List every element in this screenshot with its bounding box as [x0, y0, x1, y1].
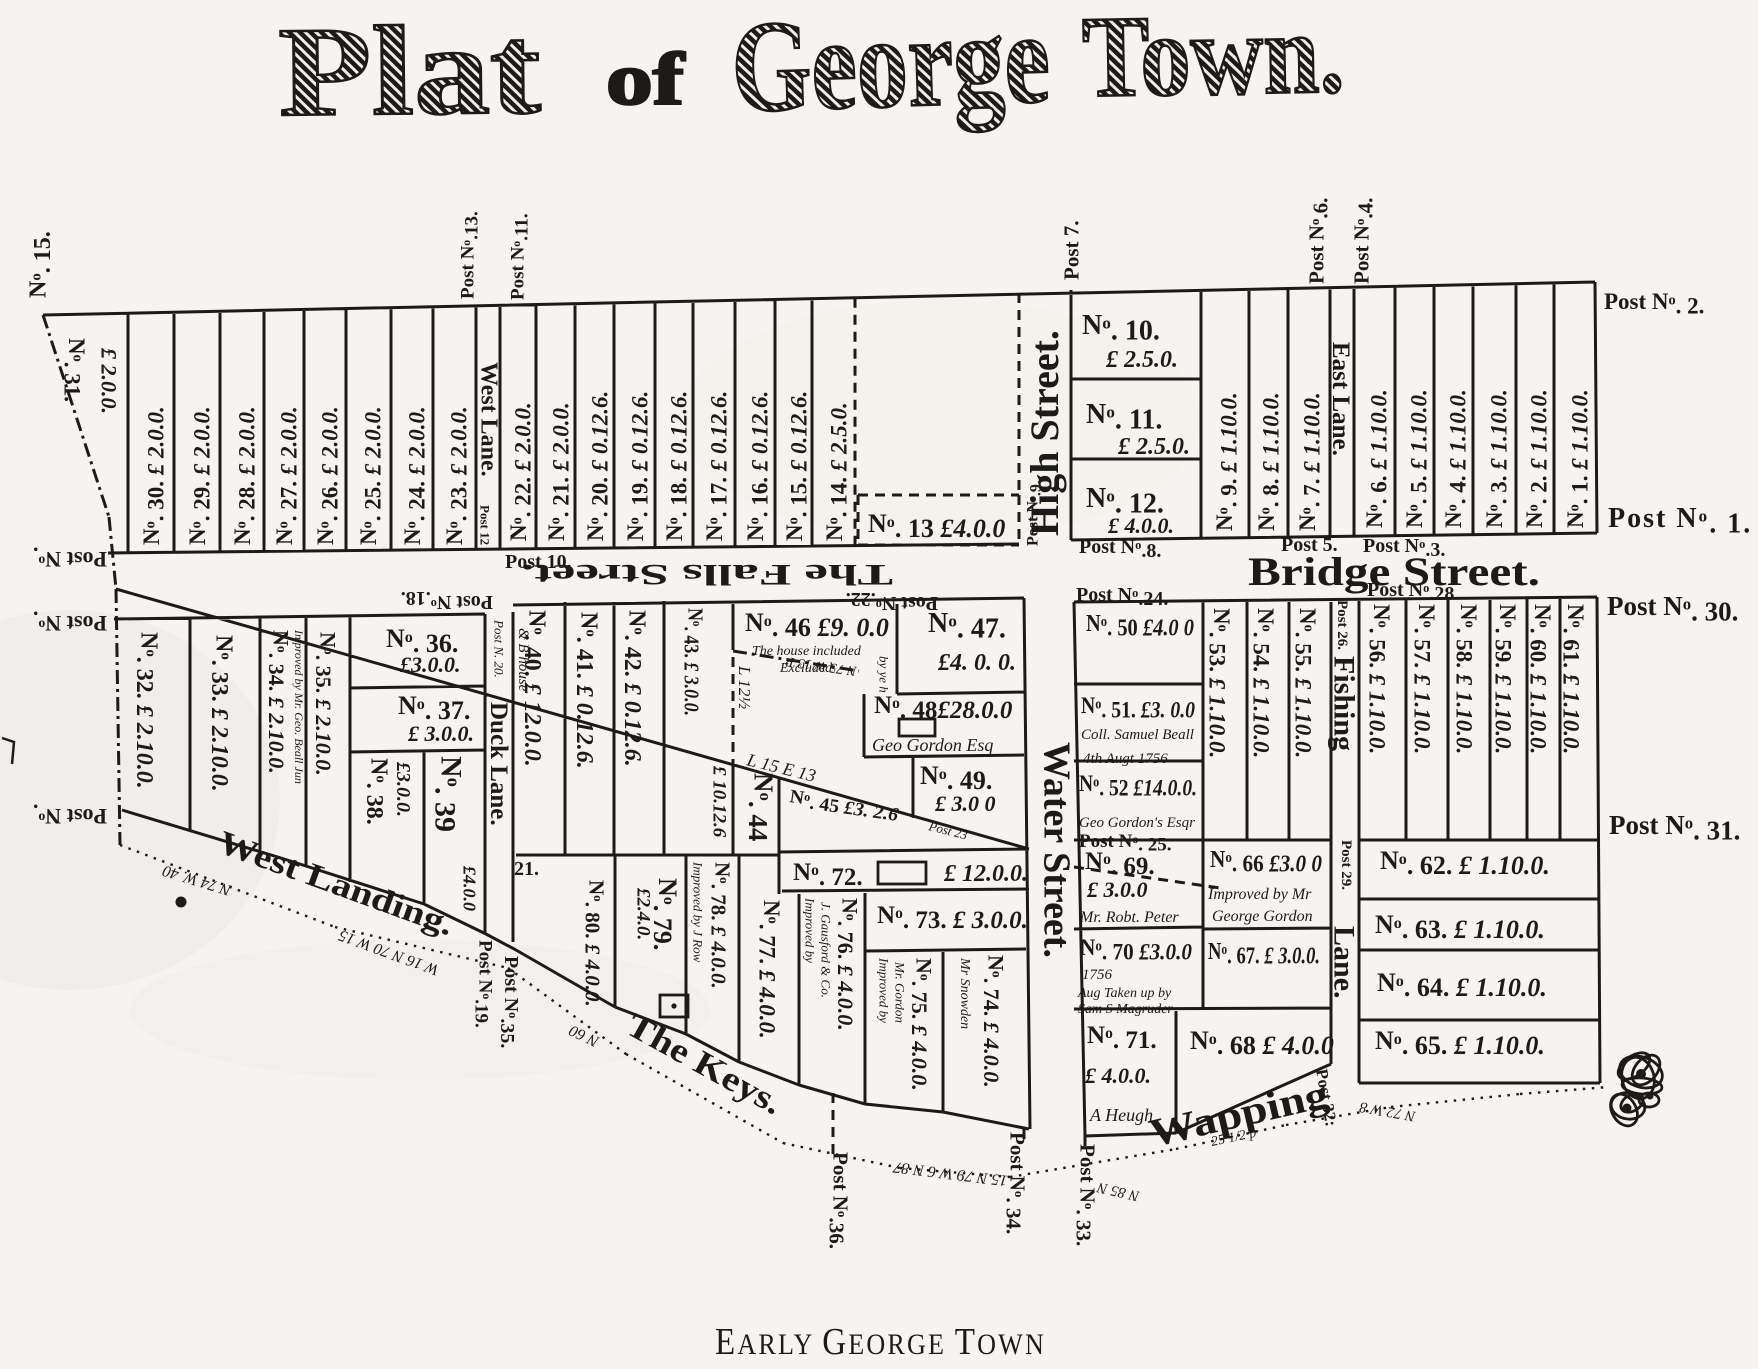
svg-text:by ye h: by ye h	[877, 656, 892, 693]
svg-text:Improved by Mr: Improved by Mr	[1207, 886, 1312, 903]
svg-text:£ 4.0.0.: £ 4.0.0.	[1107, 513, 1174, 538]
svg-text:Post No.6.: Post No.6.	[1304, 198, 1332, 284]
svg-text:£ 12.0.0.: £ 12.0.0.	[943, 861, 1028, 887]
svg-text:Post 12: Post 12	[477, 505, 492, 545]
svg-text:J. Gausford & Co.: J. Gausford & Co.	[819, 902, 834, 998]
svg-text:Post N. 20.: Post N. 20.	[491, 619, 506, 678]
svg-text:Post 7.: Post 7.	[1059, 221, 1083, 281]
svg-text:No. 37.: No. 37.	[398, 691, 470, 725]
svg-text:Plat: Plat	[278, 0, 542, 143]
svg-text:Post No.36.: Post No.36.	[825, 1152, 853, 1249]
svg-text:£3.0.0.: £3.0.0.	[399, 652, 461, 677]
svg-text:£3.0.0.: £3.0.0.	[392, 761, 414, 817]
svg-text:£4.0.0: £4.0.0	[460, 865, 480, 911]
svg-text:The Falls Street.: The Falls Street.	[521, 558, 893, 591]
svg-text:Post No.4.: Post No.4.	[1349, 198, 1377, 284]
svg-text:Post No.19.: Post No.19.	[471, 940, 496, 1028]
svg-text:£ 3.0 0: £ 3.0 0	[934, 791, 996, 816]
svg-text:Post No.13.: Post No.13.	[458, 211, 483, 299]
svg-text:A Heugh: A Heugh	[1089, 1105, 1153, 1125]
svg-text:of: of	[606, 39, 686, 121]
svg-text:Improved by J Row: Improved by J Row	[691, 861, 706, 963]
svg-text:£ 3.0.0: £ 3.0.0	[1086, 877, 1148, 902]
svg-text:Town.: Town.	[1081, 0, 1345, 122]
svg-text:1756: 1756	[1082, 967, 1113, 983]
svg-text:Lane.: Lane.	[1328, 926, 1361, 999]
svg-text:Post No. 33.: Post No. 33.	[1072, 1144, 1100, 1246]
svg-text:Mr. Robt. Peter: Mr. Robt. Peter	[1079, 909, 1179, 926]
svg-text:Post No. 34.: Post No. 34.	[1002, 1132, 1030, 1234]
svg-text:Mr Snowden: Mr Snowden	[957, 957, 972, 1029]
svg-text:Post 29.: Post 29.	[1338, 840, 1354, 890]
svg-text:East Lane.: East Lane.	[1327, 342, 1354, 456]
svg-text:Post No. 31.: Post No. 31.	[1609, 810, 1740, 845]
svg-text:£ 4.0.0.: £ 4.0.0.	[1084, 1063, 1151, 1088]
svg-text:£ 3.0.0.: £ 3.0.0.	[407, 721, 474, 746]
svg-text:No. 47.: No. 47.	[928, 608, 1006, 644]
svg-text:Duck Lane.: Duck Lane.	[485, 702, 512, 826]
svg-text:Coll. Samuel Beall: Coll. Samuel Beall	[1081, 727, 1194, 743]
svg-text:L 12½: L 12½	[735, 665, 754, 709]
svg-text:Post No. 1.: Post No. 1.	[1608, 503, 1752, 539]
svg-text:Improved by Mr. Geo. Beall Jun: Improved by Mr. Geo. Beall Jun	[292, 629, 306, 784]
svg-text:Post No.11.: Post No.11.	[508, 213, 533, 300]
svg-text:Fishing: Fishing	[1328, 656, 1361, 751]
svg-text:£ 2.5.0.: £ 2.5.0.	[1105, 347, 1178, 373]
svg-text:£2.4.0.: £2.4.0.	[632, 887, 653, 940]
svg-text:Post 26.: Post 26.	[1334, 600, 1350, 650]
svg-text:George Gordon: George Gordon	[1212, 908, 1313, 925]
svg-text:Geo Gordon's Esqr: Geo Gordon's Esqr	[1079, 815, 1195, 831]
svg-text:£ 10.12.6: £ 10.12.6	[708, 765, 729, 838]
svg-text:EARLY GEORGE TOWN: EARLY GEORGE TOWN	[715, 1321, 1046, 1363]
svg-text:Improved by: Improved by	[877, 957, 892, 1023]
svg-text:21.: 21.	[514, 858, 539, 880]
svg-text:Improved by: Improved by	[803, 897, 818, 963]
svg-text:Aug Taken up by: Aug Taken up by	[1077, 986, 1172, 1001]
svg-text:Mr. Gordon: Mr. Gordon	[893, 961, 908, 1023]
svg-text:No. 44: No. 44	[743, 773, 778, 841]
svg-text:£ 2.0.0.: £ 2.0.0.	[96, 347, 121, 414]
svg-text:George: George	[729, 0, 1051, 140]
svg-text:£ 2.5.0.: £ 2.5.0.	[1117, 434, 1190, 460]
svg-text:£4. 0. 0.: £4. 0. 0.	[937, 650, 1016, 676]
svg-text:4th Augt 1756: 4th Augt 1756	[1083, 751, 1168, 767]
svg-text:No. 49.: No. 49.	[920, 761, 992, 795]
svg-text:Water Street.: Water Street.	[1036, 742, 1078, 958]
svg-text:Geo Gordon Esq: Geo Gordon Esq	[872, 735, 993, 755]
svg-text:West Lane.: West Lane.	[476, 362, 502, 477]
svg-text:No. 10.: No. 10.	[1082, 310, 1160, 346]
svg-text:No. 11.: No. 11.	[1086, 399, 1162, 435]
svg-text:Sam S Magruder: Sam S Magruder	[1078, 1002, 1173, 1017]
svg-text:Post No. 30.: Post No. 30.	[1607, 591, 1738, 626]
